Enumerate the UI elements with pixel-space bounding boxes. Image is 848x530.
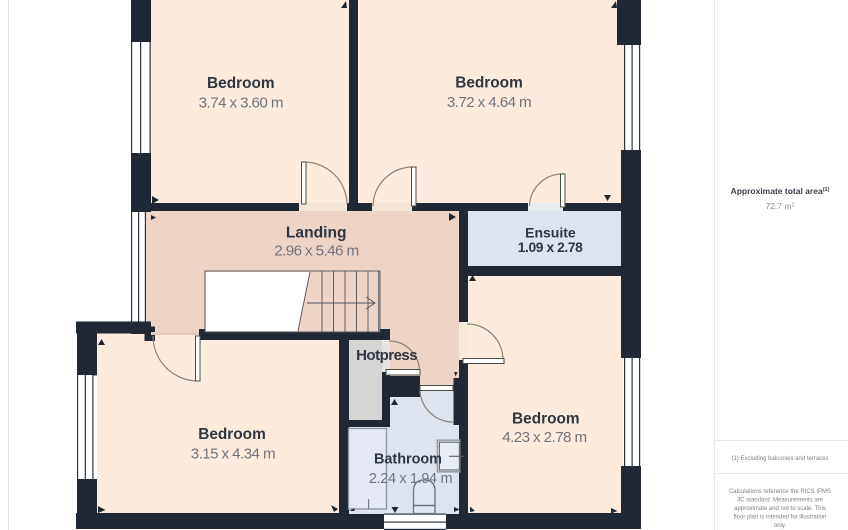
svg-text:floor plan is intended for ill: floor plan is intended for illustration	[734, 515, 827, 521]
svg-text:Bedroom: Bedroom	[455, 75, 523, 92]
svg-text:3.72 x 4.64 m: 3.72 x 4.64 m	[447, 94, 531, 111]
svg-text:Landing: Landing	[286, 225, 347, 242]
svg-text:Ensuite: Ensuite	[525, 224, 576, 240]
svg-text:2.96 x 5.46 m: 2.96 x 5.46 m	[274, 243, 358, 260]
svg-text:Bedroom: Bedroom	[512, 410, 580, 427]
svg-text:Approximate total area(1): Approximate total area(1)	[731, 186, 830, 196]
svg-text:Calculations reference the RIC: Calculations reference the RICS IPMS	[729, 489, 831, 495]
svg-text:Hotpress: Hotpress	[356, 347, 417, 364]
svg-text:1.09 x 2.78: 1.09 x 2.78	[518, 240, 583, 255]
svg-text:(1) Excluding balconies and te: (1) Excluding balconies and terraces	[731, 456, 828, 462]
svg-text:only.: only.	[774, 523, 787, 529]
svg-text:3.15 x 4.34 m: 3.15 x 4.34 m	[191, 445, 275, 462]
svg-text:72.7 m2: 72.7 m2	[765, 201, 794, 211]
svg-text:approximate and not to scale.: approximate and not to scale. This	[734, 506, 826, 512]
svg-text:4.23 x 2.78 m: 4.23 x 2.78 m	[502, 429, 586, 446]
svg-text:3C standard. Measurements are: 3C standard. Measurements are	[737, 498, 824, 504]
svg-text:Bedroom: Bedroom	[198, 426, 266, 443]
svg-text:3.74 x 3.60 m: 3.74 x 3.60 m	[199, 94, 283, 111]
svg-text:Bathroom: Bathroom	[374, 451, 442, 467]
svg-text:2.24 x 1.94 m: 2.24 x 1.94 m	[369, 471, 453, 487]
svg-text:Bedroom: Bedroom	[207, 75, 275, 92]
